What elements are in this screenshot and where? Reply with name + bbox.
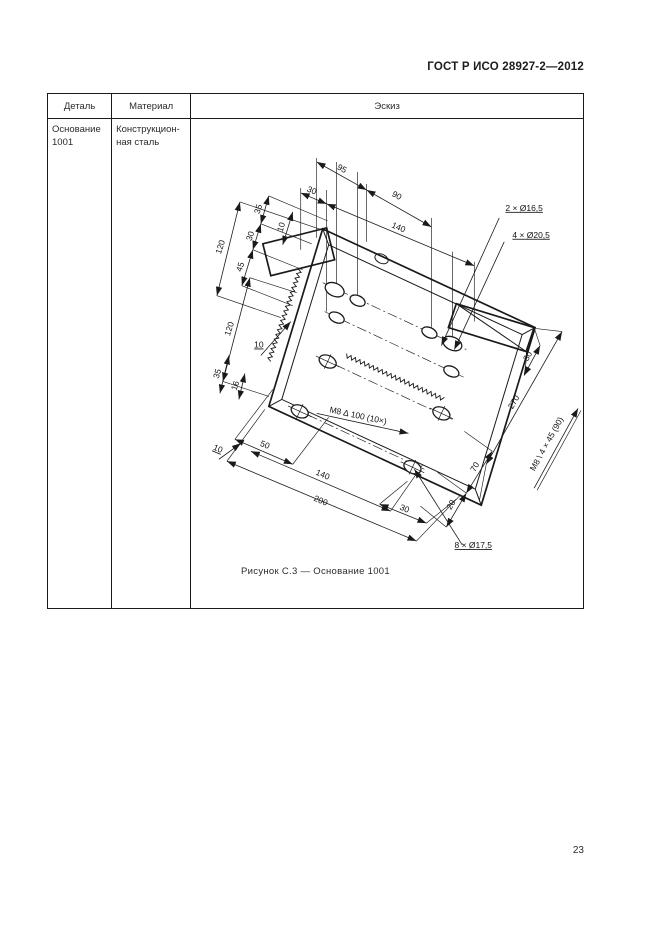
dimension-label: 270 [506,393,522,410]
dimension-label: 10 [212,442,225,455]
parts-table: Деталь Материал Эскиз Основание 1001 Кон… [47,93,584,609]
dimension-label: 140 [390,219,407,234]
detail-cell: Основание 1001 [48,119,112,609]
dimension-label: 30 [399,502,412,515]
figure-caption: Рисунок С.3 — Основание 1001 [47,566,584,577]
leader-lines [219,217,578,544]
dimension-lines [217,162,562,541]
dimension-label: M8 \ 4 × 45 (90) [528,415,566,472]
table-row: Основание 1001 Конструкцион- ная сталь [48,119,584,609]
column-header-sketch: Эскиз [191,94,584,119]
dimension-label: 10 [275,220,288,232]
dimension-label: 120 [213,238,227,255]
dimension-label: 30 [244,229,257,241]
material-cell: Конструкцион- ная сталь [112,119,191,609]
page-number: 23 [47,845,584,856]
dimension-label: 50 [259,438,272,451]
dimension-label: 8 × Ø17,5 [455,540,493,550]
dimension-label: M8 ∆ 100 (10×) [329,404,388,426]
dimension-label: 35 [211,367,224,379]
dimension-label: 35 [252,202,265,214]
holes [285,279,465,479]
dimension-label: 95 [336,161,349,174]
technical-drawing: 9530901402 × Ø16,54 × Ø20,51203530104512… [195,150,587,578]
dimension-label: 16 [229,379,242,391]
dimension-label: 45 [234,260,247,272]
dimension-label: 200 [313,493,330,508]
table-header-row: Деталь Материал Эскиз [48,94,584,119]
document-page: { "page": { "header_title": "ГОСТ Р ИСО … [0,0,661,936]
column-header-material: Материал [112,94,191,119]
dimension-label: 90 [391,188,404,201]
dimension-label: 10 [254,339,264,349]
centerlines [292,282,467,469]
dimension-label: 4 × Ø20,5 [513,229,551,239]
dimension-label: 2 × Ø16,5 [506,202,544,212]
part-outline [263,227,535,504]
column-header-detail: Деталь [48,94,112,119]
dimension-label: 120 [222,320,236,337]
standard-designation: ГОСТ Р ИСО 28927-2—2012 [47,61,584,73]
sketch-cell: 9530901402 × Ø16,54 × Ø20,51203530104512… [191,119,584,609]
